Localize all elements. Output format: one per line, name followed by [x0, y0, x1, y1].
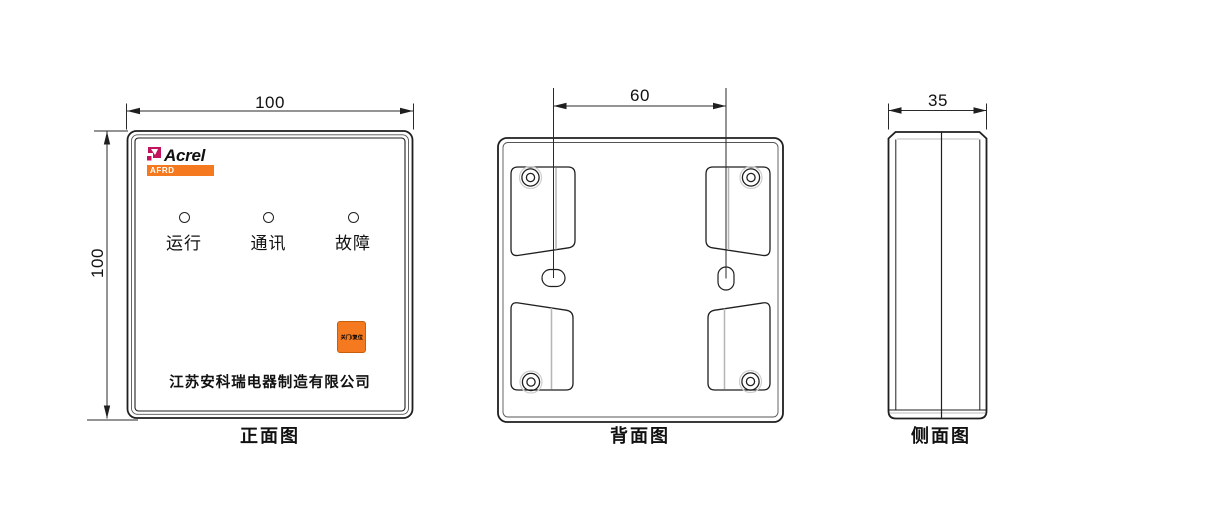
back-hole-spacing-dimension: 60 — [615, 86, 665, 106]
led-fault-label: 故障 — [321, 229, 385, 254]
technical-drawing-canvas: 100 100 60 35 Acrel AFRD 运行 通讯 故障 关门/复位 … — [0, 0, 1212, 510]
back-panel-seam-lines — [552, 168, 729, 389]
led-fault-indicator — [348, 212, 359, 223]
led-comm-indicator — [263, 212, 274, 223]
led-run-indicator — [179, 212, 190, 223]
back-view-caption: 背面图 — [595, 422, 685, 448]
close-reset-button-label: 关门/复位 — [340, 333, 362, 341]
side-view-outline — [889, 132, 987, 419]
acrel-logo-icon — [147, 147, 162, 163]
led-comm-label: 通讯 — [237, 229, 301, 254]
screw-icon — [740, 371, 762, 393]
front-height-dimension: 100 — [88, 241, 106, 285]
back-mounting-panels — [511, 167, 770, 390]
close-reset-button: 关门/复位 — [337, 321, 366, 353]
brand-name: Acrel — [164, 147, 205, 164]
led-run-label: 运行 — [152, 229, 216, 254]
company-name: 江苏安科瑞电器制造有限公司 — [130, 371, 410, 392]
brand-logo: Acrel — [147, 147, 205, 164]
front-width-dimension: 100 — [245, 93, 295, 113]
screw-icon — [520, 167, 542, 189]
front-view-caption: 正面图 — [225, 422, 315, 448]
back-dimension-lines — [554, 88, 727, 279]
side-view-caption: 侧面图 — [896, 422, 986, 448]
series-badge: AFRD — [147, 165, 214, 176]
screw-icon — [740, 167, 762, 189]
side-depth-dimension: 35 — [913, 91, 963, 111]
keyhole-slot — [542, 267, 734, 290]
